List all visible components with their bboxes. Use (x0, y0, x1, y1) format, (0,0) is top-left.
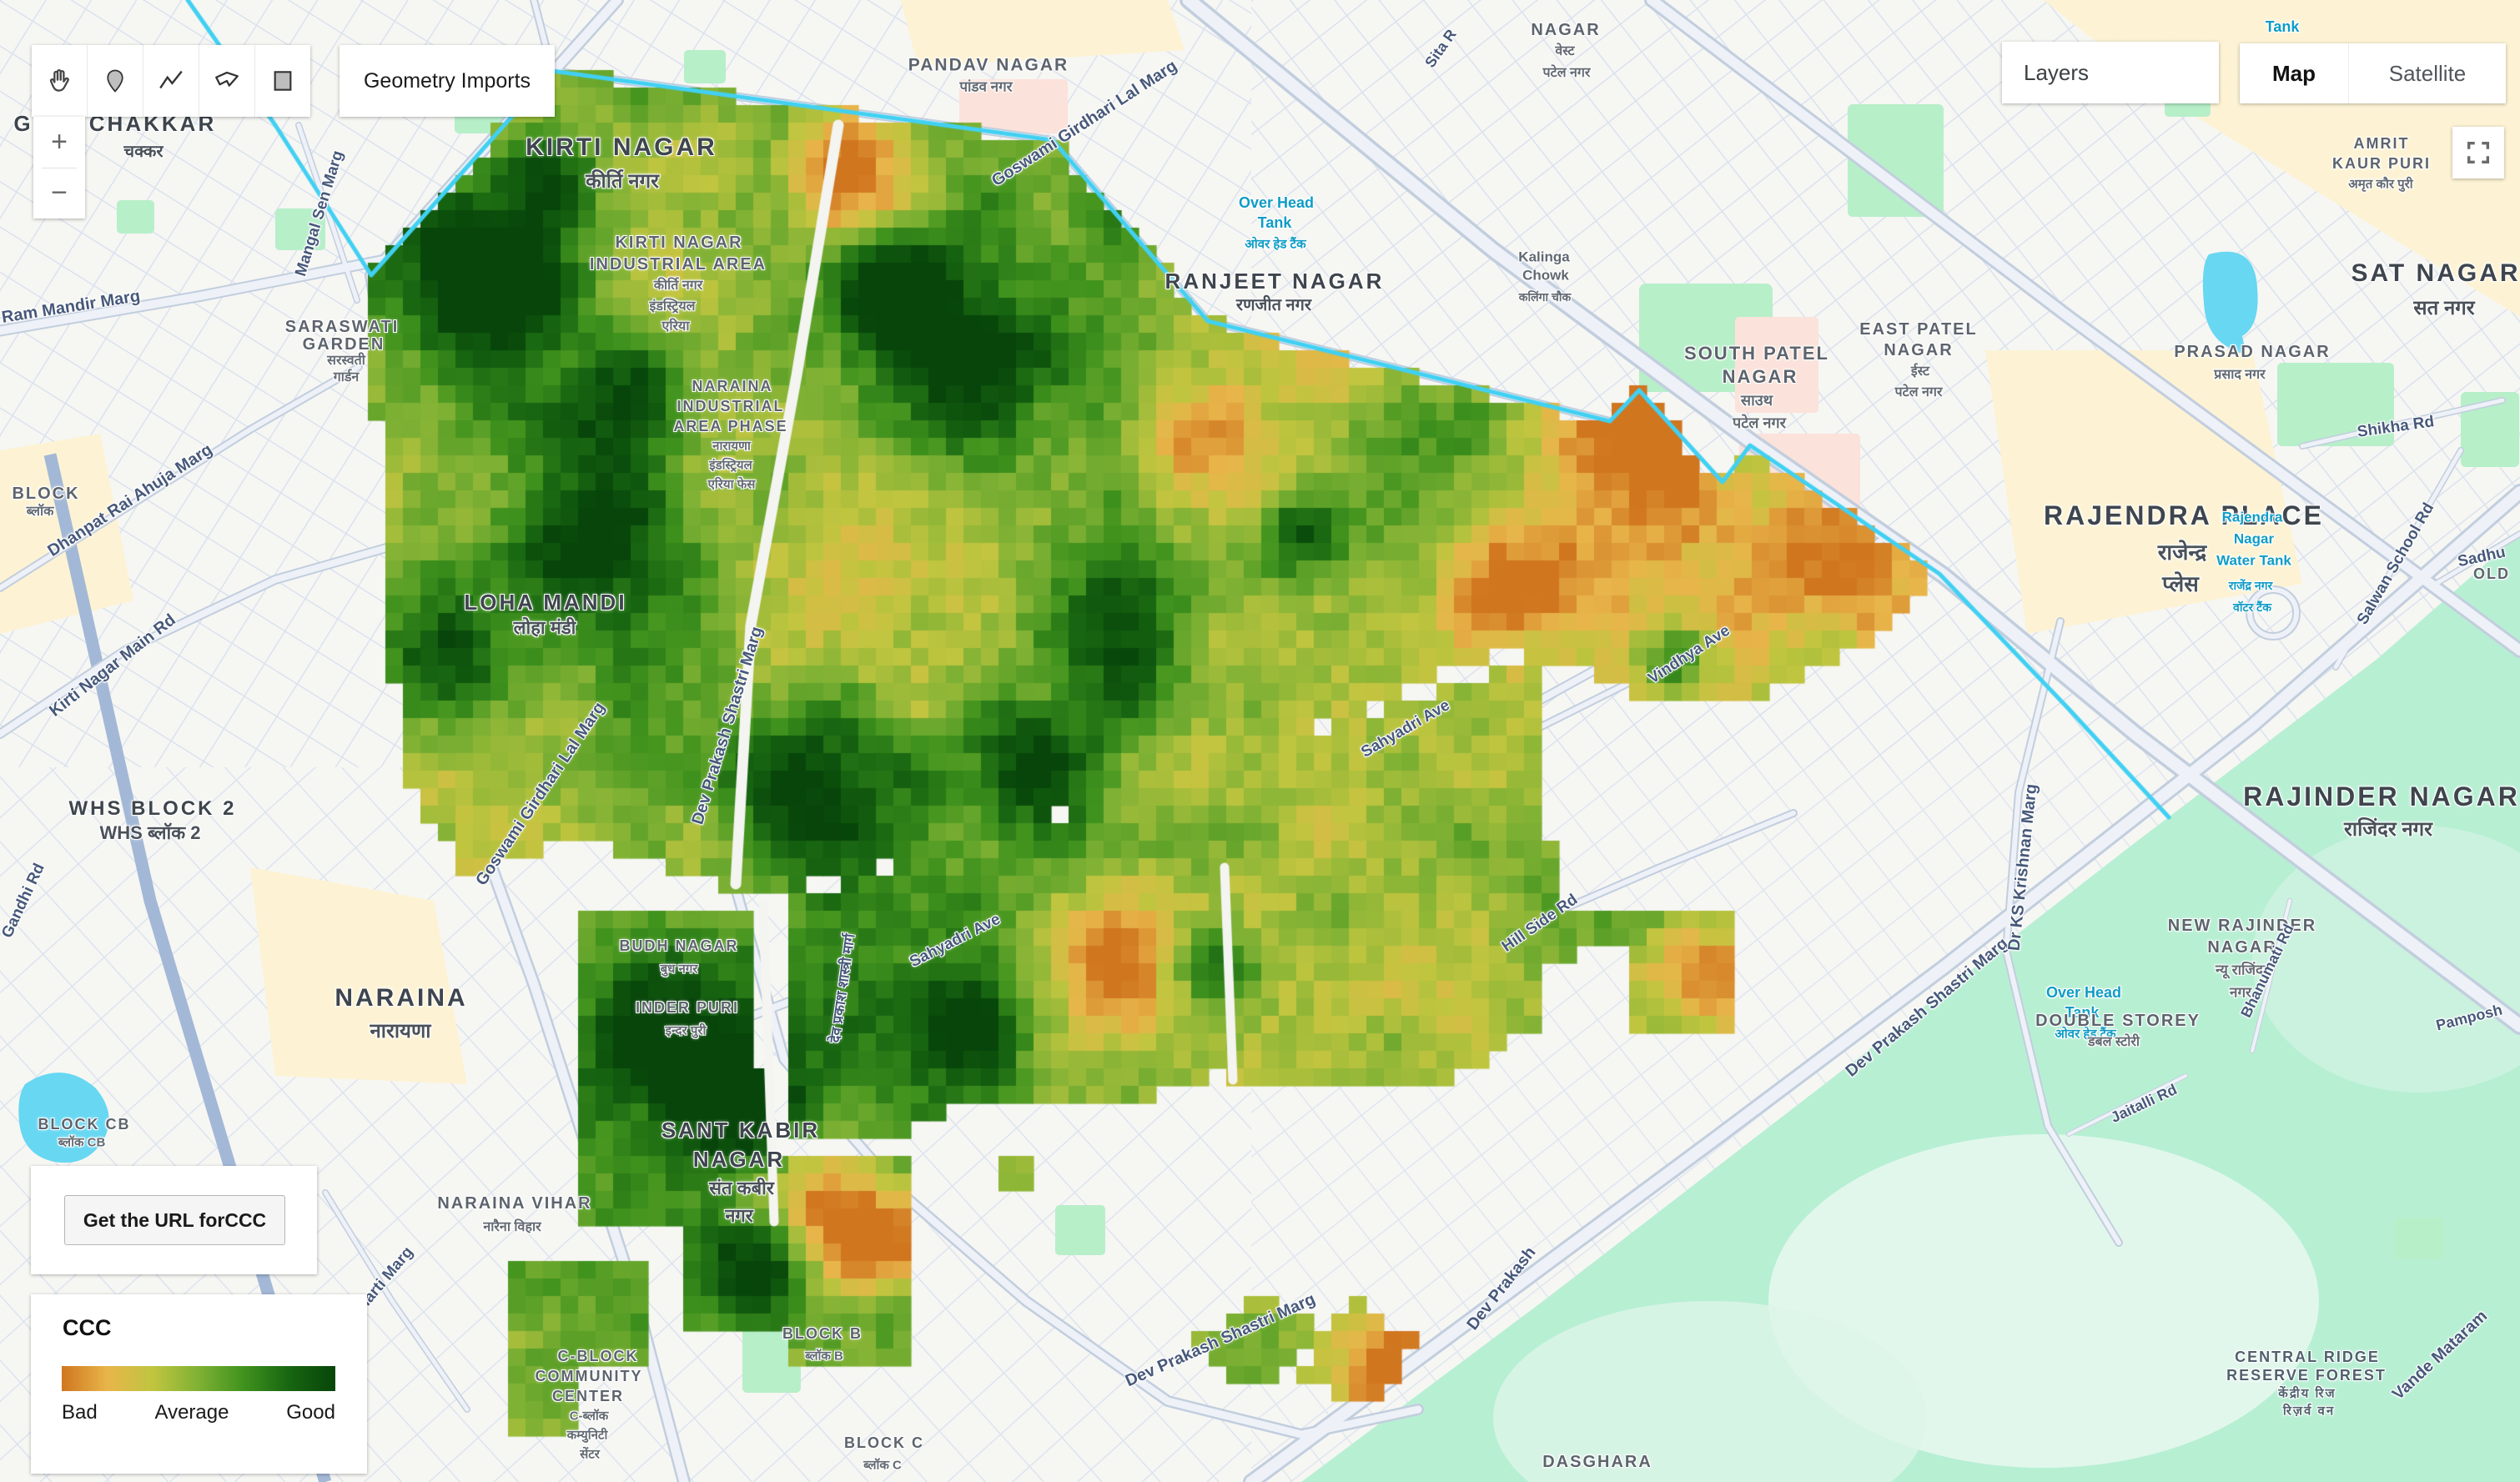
legend-mid-label: Average (155, 1401, 229, 1424)
marker-icon (103, 67, 128, 95)
point-marker-tool[interactable] (88, 45, 143, 117)
polyline-tool[interactable] (143, 45, 199, 117)
drawing-toolbar (32, 45, 310, 117)
polygon-tool[interactable] (199, 45, 255, 117)
get-url-button[interactable]: Get the URL forCCC (64, 1195, 285, 1245)
url-panel: Get the URL forCCC (31, 1166, 317, 1274)
satellite-type-button[interactable]: Satellite (2349, 43, 2506, 103)
geometry-imports-button[interactable]: Geometry Imports (340, 45, 555, 117)
ccc-raster-layer (0, 0, 2520, 1482)
polygon-icon (213, 67, 241, 95)
map-type-button[interactable]: Map (2240, 43, 2349, 103)
legend-min-label: Bad (62, 1401, 98, 1424)
fullscreen-button[interactable] (2452, 127, 2504, 178)
legend-title: CCC (63, 1315, 112, 1341)
ccc-legend: CCC Bad Average Good (31, 1294, 367, 1474)
zoom-in-button[interactable]: + (33, 117, 85, 168)
rectangle-tool[interactable] (255, 45, 310, 117)
zoom-control: + − (33, 117, 85, 219)
basemap-toggle: Map Satellite (2240, 43, 2506, 103)
rectangle-icon (269, 68, 296, 94)
pan-hand-tool[interactable] (32, 45, 88, 117)
map-canvas[interactable]: GCHAKKARचक्करKIRTI NAGARकीर्ति नगरPANDAV… (0, 0, 2520, 1482)
polyline-icon (157, 67, 185, 95)
legend-max-label: Good (286, 1401, 335, 1424)
layers-panel[interactable]: Layers (2002, 42, 2219, 103)
zoom-out-button[interactable]: − (33, 168, 85, 219)
fullscreen-icon (2464, 138, 2492, 167)
hand-icon (45, 67, 73, 95)
legend-gradient-bar (62, 1366, 335, 1391)
